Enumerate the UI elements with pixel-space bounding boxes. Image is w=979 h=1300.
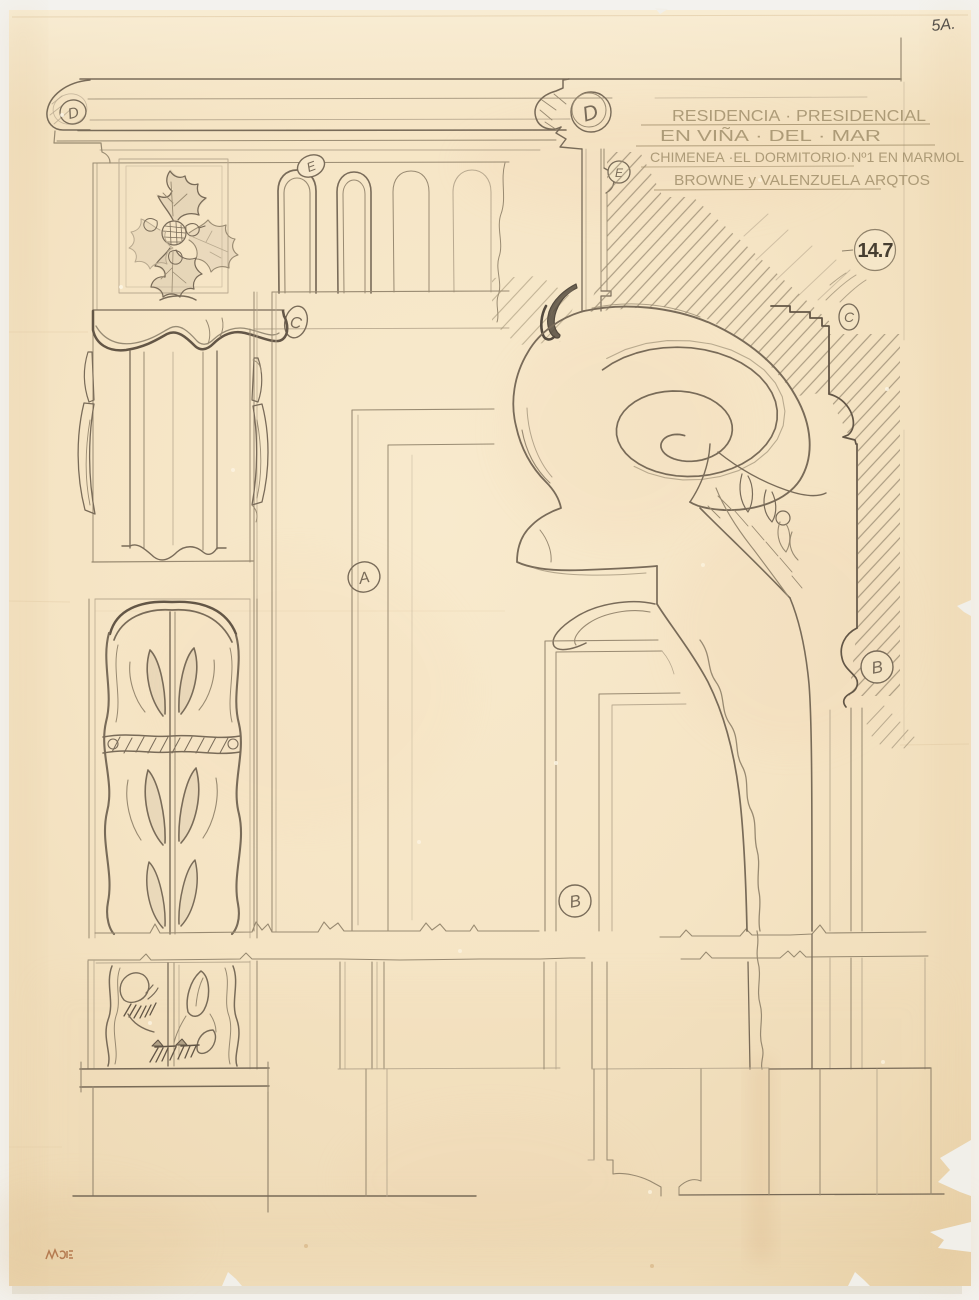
svg-text:CHIMENEA ·EL DORMITORIO·Nº1 EN: CHIMENEA ·EL DORMITORIO·Nº1 EN MARMOL — [650, 149, 964, 165]
svg-text:C: C — [844, 309, 855, 325]
svg-text:14.7: 14.7 — [858, 240, 894, 262]
svg-text:EN VIÑA · DEL · MAR: EN VIÑA · DEL · MAR — [660, 128, 881, 145]
svg-text:RESIDENCIA · PRESIDENCIAL: RESIDENCIA · PRESIDENCIAL — [672, 108, 926, 125]
svg-text:BROWNE y VALENZUELA ARQTOS: BROWNE y VALENZUELA ARQTOS — [674, 172, 930, 189]
svg-text:5A.: 5A. — [931, 16, 957, 35]
